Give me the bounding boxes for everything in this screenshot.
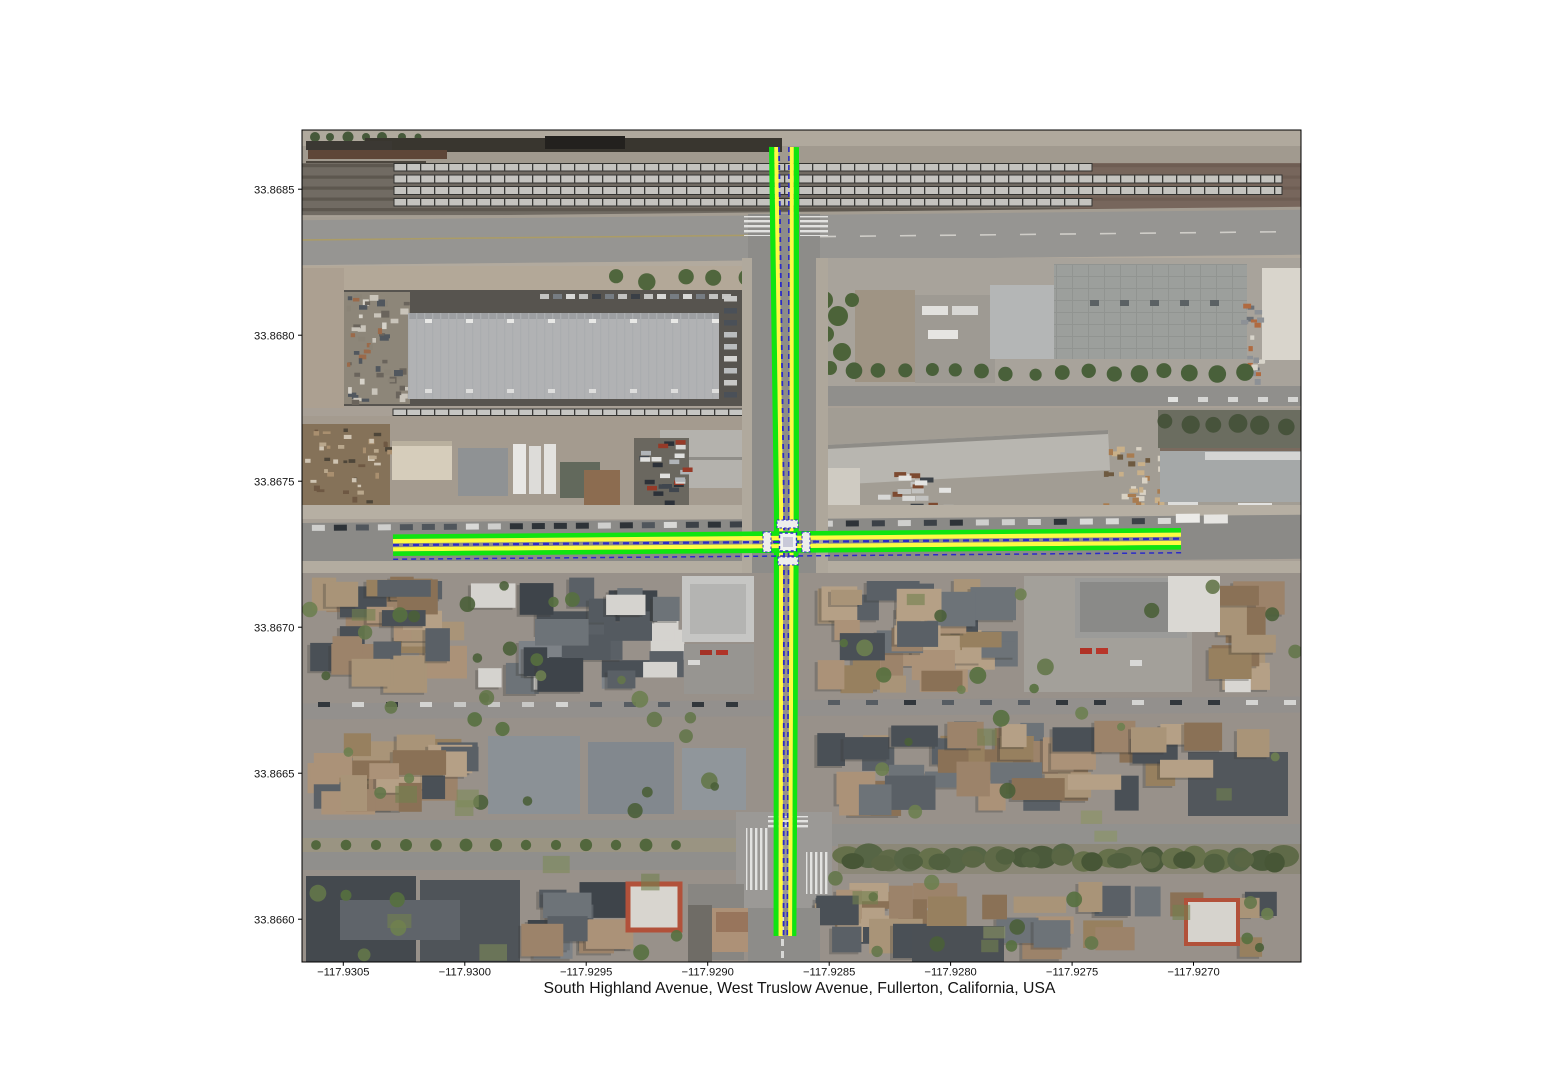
svg-text:33.8680: 33.8680 bbox=[254, 330, 294, 342]
svg-text:−117.9275: −117.9275 bbox=[1046, 967, 1098, 979]
svg-text:33.8685: 33.8685 bbox=[254, 184, 294, 196]
svg-text:33.8665: 33.8665 bbox=[254, 768, 294, 780]
svg-text:−117.9305: −117.9305 bbox=[317, 967, 369, 979]
svg-text:−117.9290: −117.9290 bbox=[682, 967, 734, 979]
svg-text:−117.9300: −117.9300 bbox=[439, 967, 491, 979]
svg-text:−117.9295: −117.9295 bbox=[560, 967, 612, 979]
svg-text:South Highland Avenue, West Tr: South Highland Avenue, West Truslow Aven… bbox=[544, 980, 1056, 997]
svg-text:−117.9285: −117.9285 bbox=[803, 967, 855, 979]
svg-text:33.8660: 33.8660 bbox=[254, 914, 294, 926]
svg-text:−117.9280: −117.9280 bbox=[924, 967, 976, 979]
svg-text:33.8670: 33.8670 bbox=[254, 622, 294, 634]
svg-text:33.8675: 33.8675 bbox=[254, 476, 294, 488]
svg-text:−117.9270: −117.9270 bbox=[1167, 967, 1219, 979]
